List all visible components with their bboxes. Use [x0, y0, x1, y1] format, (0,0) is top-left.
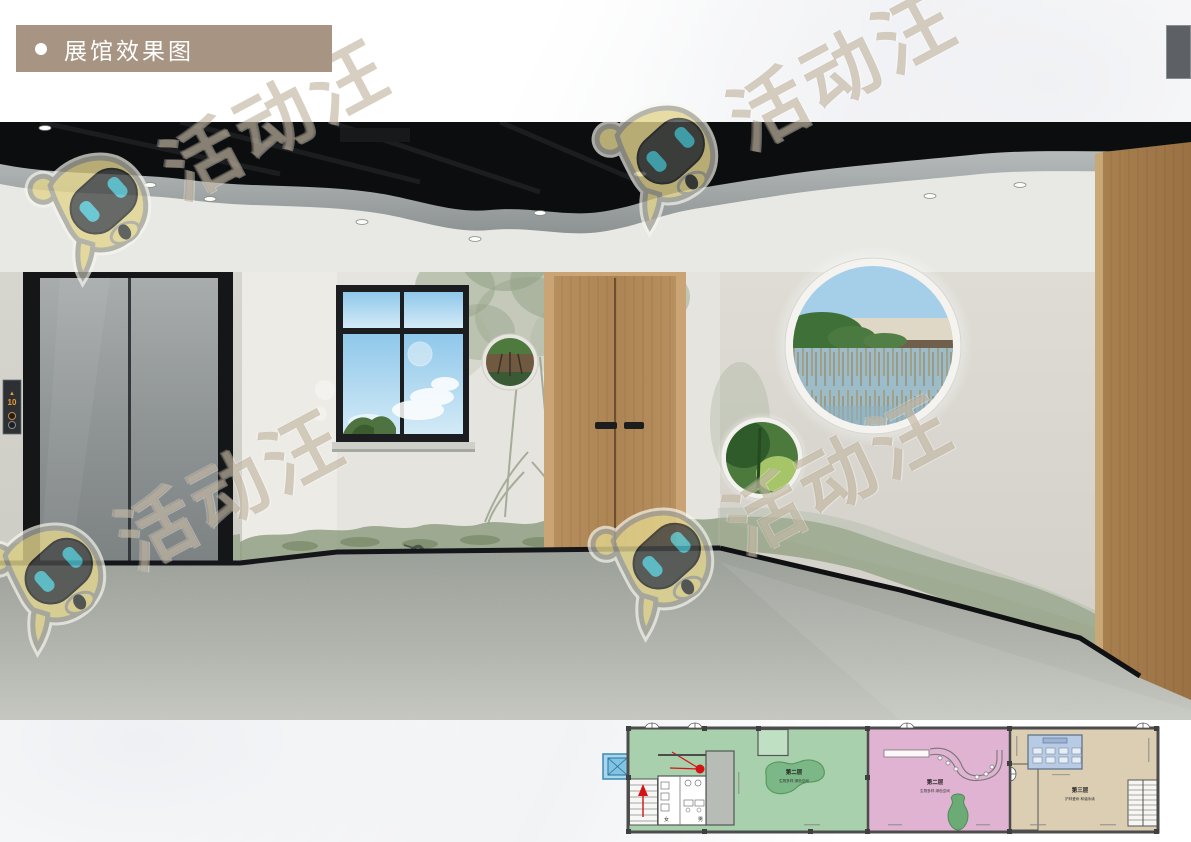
floor-plan: 女 男 第二层 生物多样 绿色空间 第二层 生物多样 绿色空间	[600, 722, 1185, 840]
right-wood-door	[1095, 142, 1191, 712]
elevator-call-panel[interactable]: ▲ 10	[3, 380, 21, 434]
window	[332, 285, 475, 452]
double-wood-door	[544, 266, 686, 560]
tan-section-title: 第三层	[1072, 786, 1089, 794]
section-title-bar: ● 展馆效果图	[16, 25, 332, 72]
section-title: 展馆效果图	[64, 32, 194, 66]
elevator-down-button[interactable]	[9, 422, 16, 429]
plan-stairs-right	[1128, 780, 1158, 826]
plan-small-room	[758, 730, 788, 756]
plan-restroom: 女 男	[658, 776, 706, 825]
plan-corridor	[706, 751, 734, 825]
tan-section-subtitle: 护林爱树 和谐永续	[1065, 796, 1095, 801]
door-handle-left[interactable]	[595, 422, 617, 429]
pink-section-title: 第二层	[927, 778, 944, 786]
pink-section-subtitle: 生物多样 绿色空间	[920, 788, 950, 793]
plan-meeting-room	[1028, 735, 1082, 769]
green-section-title: 第二层	[786, 768, 803, 776]
door-handle-right[interactable]	[624, 422, 644, 429]
restroom-male-label: 男	[698, 817, 703, 823]
porthole-mangrove-photo	[486, 338, 534, 386]
green-section-subtitle: 生物多样 绿色空间	[779, 778, 809, 783]
elevator-up-button[interactable]	[9, 413, 16, 420]
bullet-icon: ●	[35, 43, 47, 55]
elevator-display-arrow: ▲	[9, 391, 15, 397]
elevator: ▲ 10	[3, 258, 233, 580]
elevator-display-floor: 10	[8, 398, 17, 407]
exhibition-hall-rendering: ▲ 10	[0, 122, 1191, 720]
page-edge-tab	[1166, 25, 1191, 79]
ceiling	[0, 122, 1191, 272]
elevator-door-right	[131, 278, 218, 570]
restroom-female-label: 女	[664, 816, 669, 823]
plan-stairs-left	[630, 779, 658, 825]
